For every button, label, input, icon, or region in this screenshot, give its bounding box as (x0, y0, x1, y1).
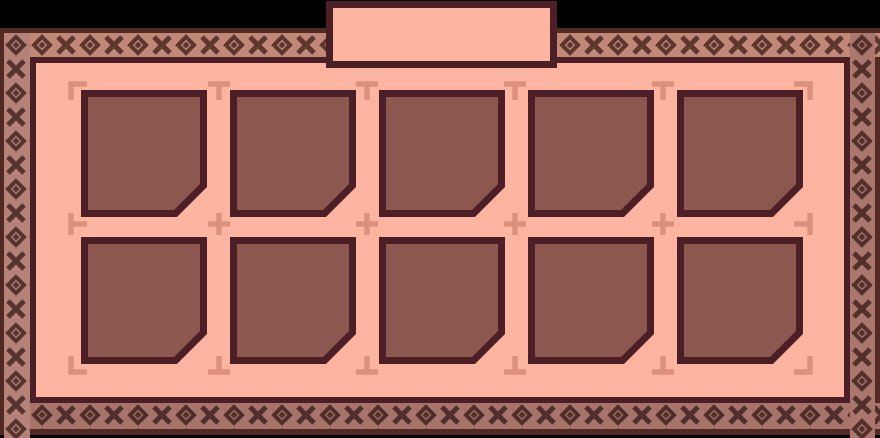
panel-tab[interactable] (326, 1, 557, 68)
inventory-slot-8[interactable] (379, 237, 505, 364)
inventory-slot-4[interactable] (528, 90, 654, 217)
border-pattern-bottom (30, 403, 880, 429)
inventory-slot-1[interactable] (81, 90, 207, 217)
inventory-slot-10[interactable] (677, 237, 803, 364)
inventory-slot-3[interactable] (379, 90, 505, 217)
inventory-slot-7[interactable] (230, 237, 356, 364)
border-pattern-left (4, 33, 30, 438)
inventory-slot-6[interactable] (81, 237, 207, 364)
inventory-slot-5[interactable] (677, 90, 803, 217)
inventory-slot-2[interactable] (230, 90, 356, 217)
border-pattern-right (850, 33, 875, 438)
game-screen (0, 0, 880, 438)
inventory-slot-9[interactable] (528, 237, 654, 364)
